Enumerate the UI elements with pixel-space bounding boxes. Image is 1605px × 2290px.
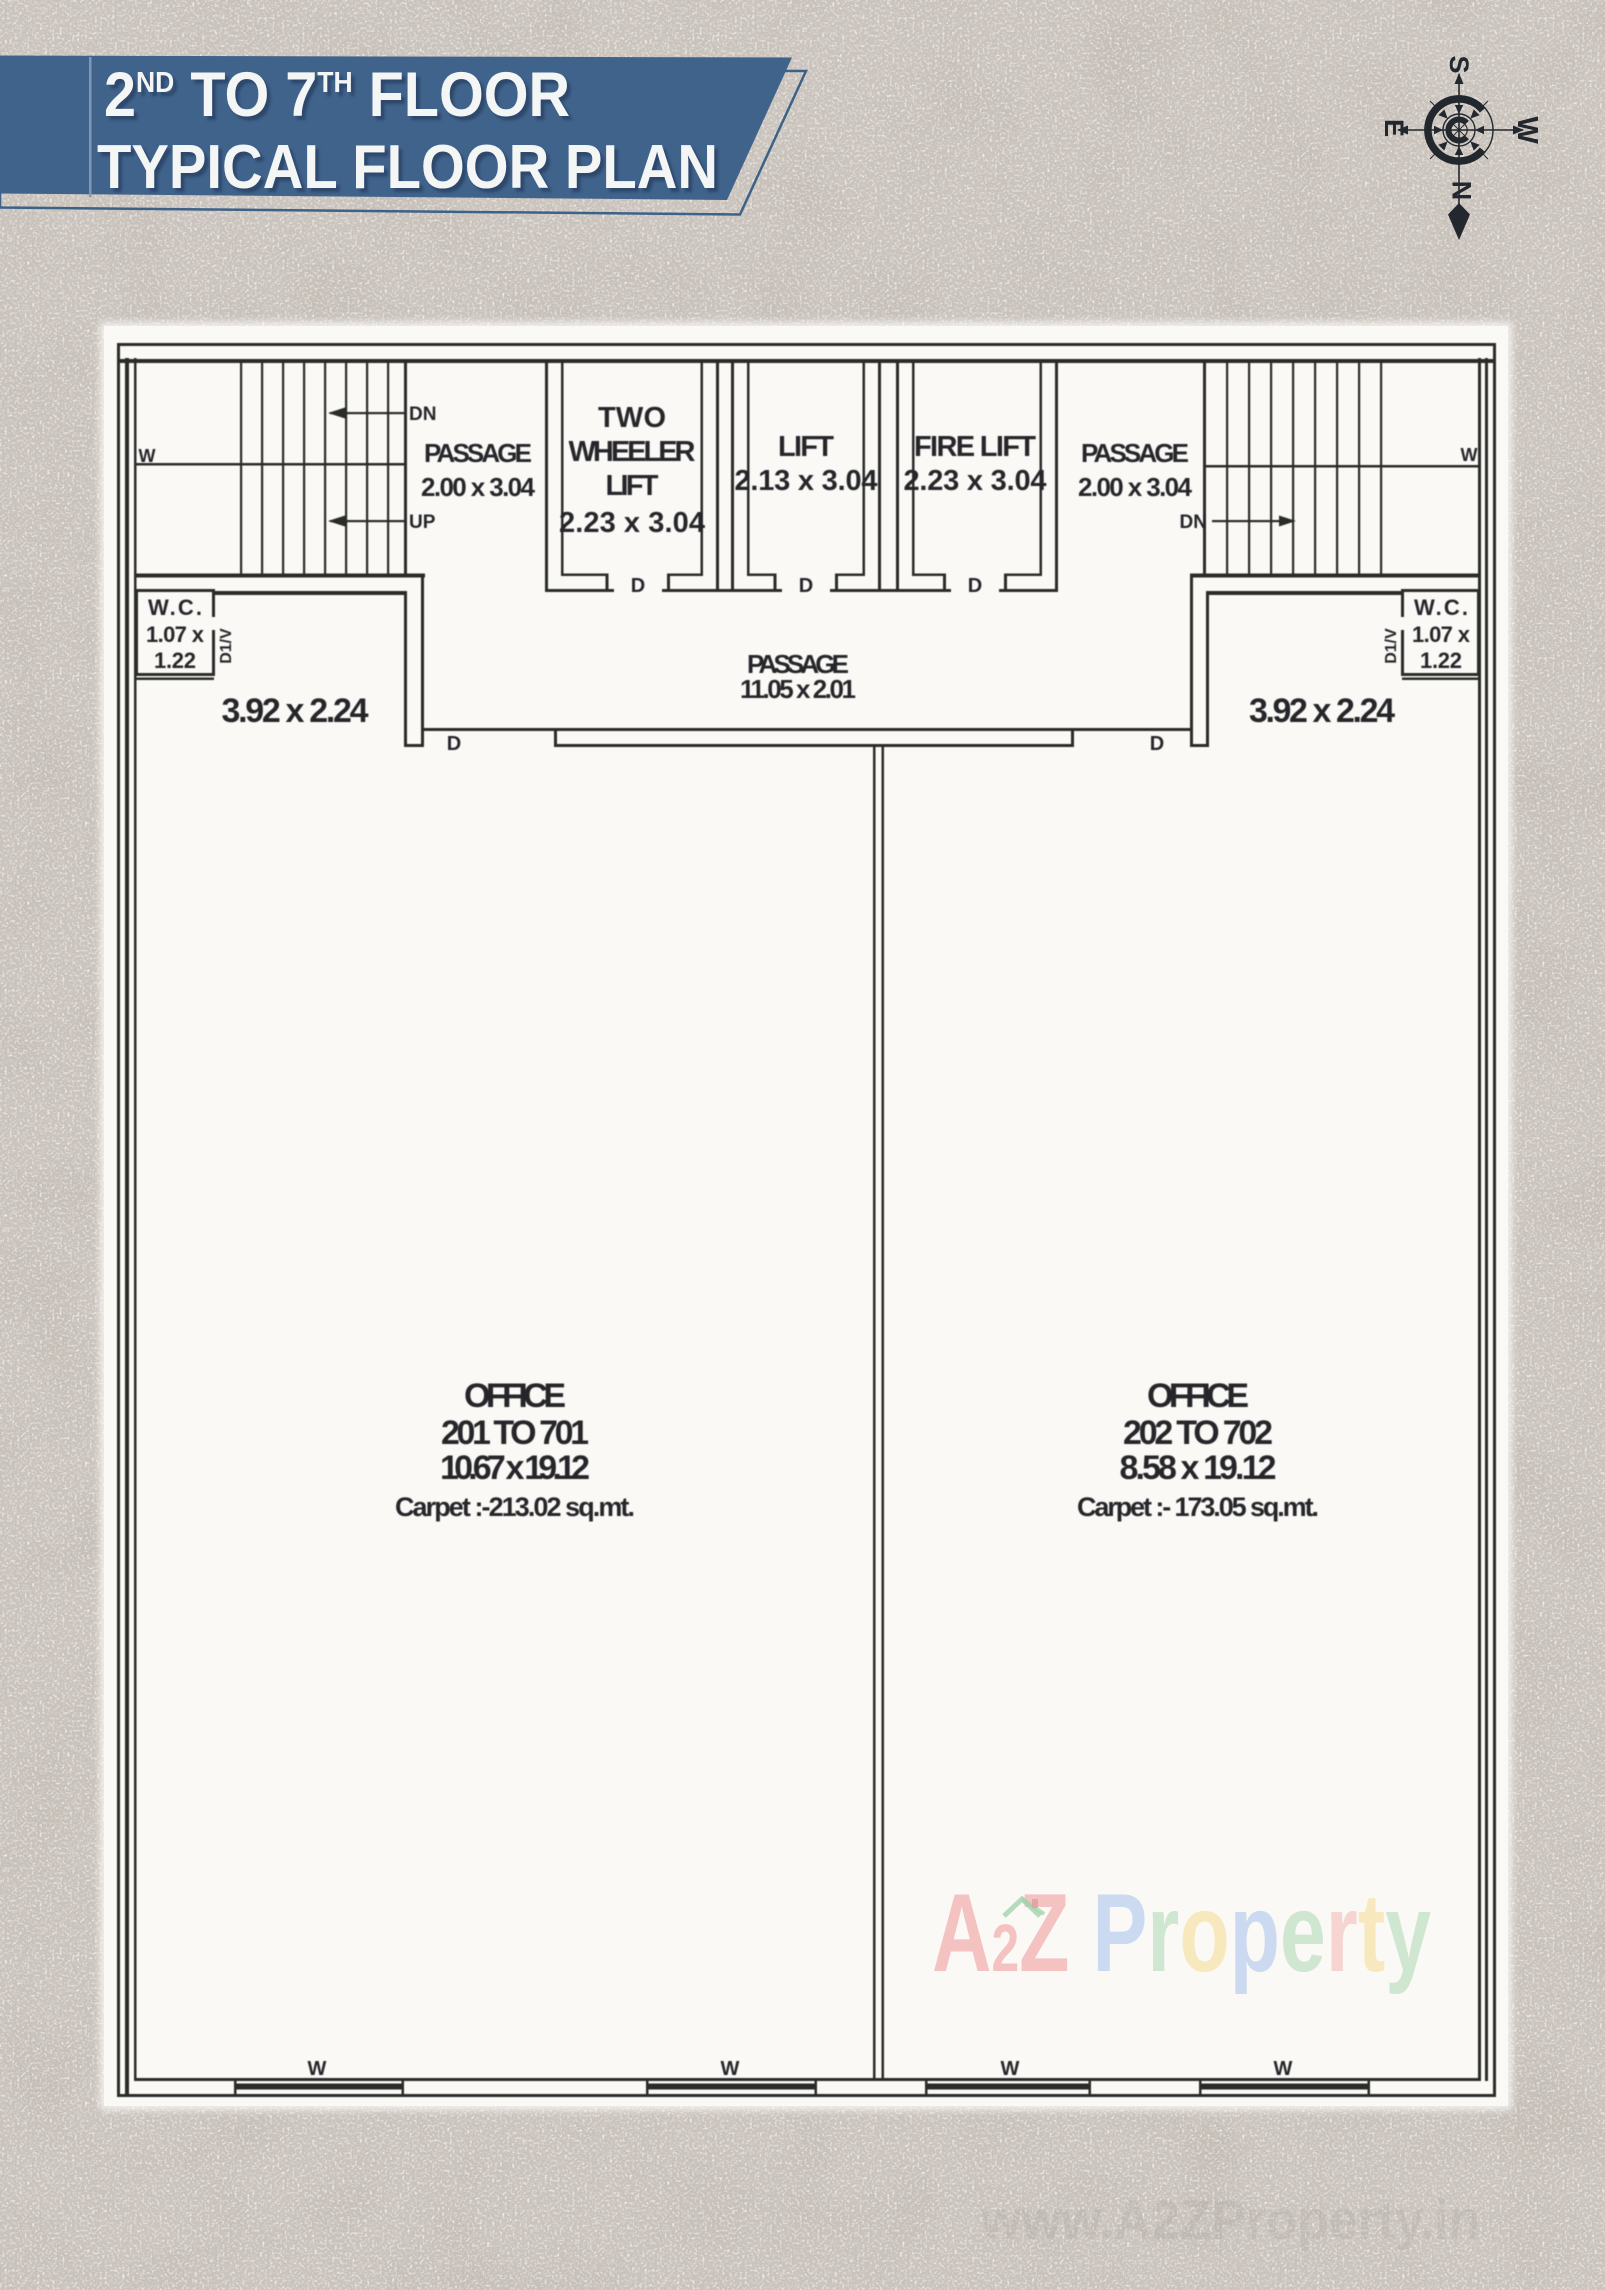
svg-text:FIRE LIFT: FIRE LIFT bbox=[914, 431, 1036, 463]
svg-text:W: W bbox=[1274, 2058, 1293, 2080]
svg-text:OFFICE: OFFICE bbox=[464, 1377, 566, 1415]
svg-text:1.22: 1.22 bbox=[1420, 648, 1462, 673]
svg-text:TWO: TWO bbox=[598, 402, 666, 434]
svg-text:UP: UP bbox=[409, 512, 436, 533]
svg-text:N: N bbox=[1447, 181, 1477, 201]
svg-text:D: D bbox=[799, 575, 813, 597]
svg-text:2.00 x 3.04: 2.00 x 3.04 bbox=[1078, 472, 1193, 502]
svg-text:W.C.: W.C. bbox=[1414, 595, 1468, 620]
svg-text:Carpet :- 173.05 sq.mt.: Carpet :- 173.05 sq.mt. bbox=[1077, 1492, 1319, 1522]
svg-text:3.92 x 2.24: 3.92 x 2.24 bbox=[222, 692, 369, 730]
svg-text:202 TO 702: 202 TO 702 bbox=[1123, 1414, 1273, 1452]
svg-text:2.13 x 3.04: 2.13 x 3.04 bbox=[735, 465, 878, 497]
svg-text:10.67 x 19.12: 10.67 x 19.12 bbox=[440, 1449, 590, 1487]
svg-text:11.05 x 2.01: 11.05 x 2.01 bbox=[740, 674, 856, 704]
svg-text:8.58 x 19.12: 8.58 x 19.12 bbox=[1120, 1449, 1277, 1487]
svg-text:3.92 x 2.24: 3.92 x 2.24 bbox=[1249, 692, 1395, 730]
svg-text:1.07 x: 1.07 x bbox=[146, 622, 205, 647]
svg-text:1.07 x: 1.07 x bbox=[1412, 622, 1471, 647]
svg-text:W.C.: W.C. bbox=[148, 595, 202, 620]
svg-text:D: D bbox=[447, 733, 461, 755]
svg-text:D1/V: D1/V bbox=[218, 628, 235, 664]
svg-text:W: W bbox=[1511, 116, 1543, 144]
svg-text:PASSAGE: PASSAGE bbox=[424, 438, 532, 468]
svg-text:S: S bbox=[1444, 55, 1474, 73]
svg-text:W: W bbox=[139, 446, 156, 466]
svg-text:DN: DN bbox=[409, 404, 436, 425]
svg-text:OFFICE: OFFICE bbox=[1147, 1377, 1249, 1415]
svg-text:W: W bbox=[721, 2058, 740, 2080]
svg-text:201 TO 701: 201 TO 701 bbox=[441, 1414, 589, 1452]
svg-text:W: W bbox=[1461, 445, 1478, 465]
svg-text:WHEELER: WHEELER bbox=[569, 436, 696, 468]
svg-text:LIFT: LIFT bbox=[606, 470, 659, 502]
svg-text:DN: DN bbox=[1180, 512, 1207, 533]
svg-text:1.22: 1.22 bbox=[154, 648, 196, 673]
svg-text:Carpet :-213.02 sq.mt.: Carpet :-213.02 sq.mt. bbox=[395, 1492, 635, 1522]
svg-text:E: E bbox=[1380, 119, 1409, 137]
svg-text:2.23 x 3.04: 2.23 x 3.04 bbox=[559, 507, 705, 539]
svg-text:LIFT: LIFT bbox=[778, 431, 834, 463]
svg-text:PASSAGE: PASSAGE bbox=[1081, 438, 1189, 468]
svg-text:2.00 x 3.04: 2.00 x 3.04 bbox=[421, 472, 536, 502]
svg-text:2.23 x 3.04: 2.23 x 3.04 bbox=[904, 465, 1047, 497]
svg-text:D1/V: D1/V bbox=[1383, 628, 1400, 664]
svg-text:W: W bbox=[308, 2058, 327, 2080]
svg-text:D: D bbox=[1150, 733, 1164, 755]
svg-text:D: D bbox=[968, 575, 982, 597]
svg-text:W: W bbox=[1001, 2058, 1020, 2080]
svg-text:D: D bbox=[631, 575, 645, 597]
